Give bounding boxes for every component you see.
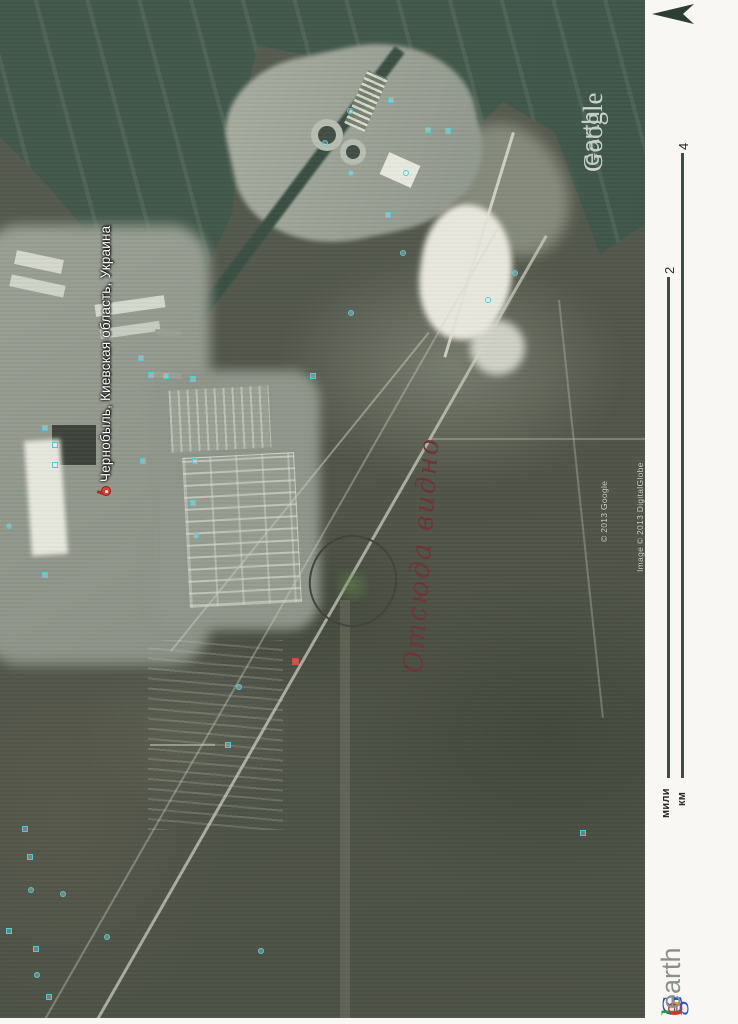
scan-texture: [0, 0, 645, 1018]
scale-bar-miles: [667, 277, 670, 778]
margin-panel: 4 2 мили км Googleearth: [645, 0, 738, 1024]
scanned-page: Отсюда видно Чернобыль, Киевская область…: [0, 0, 738, 1024]
scale-bar-km: [681, 153, 684, 778]
scale-miles-value: 2: [662, 267, 677, 274]
earth-logo-word: earth: [656, 947, 687, 1009]
page-margin-bottom: [0, 1018, 645, 1024]
satellite-map[interactable]: Отсюда видно Чернобыль, Киевская область…: [0, 0, 645, 1018]
scale-km-unit: км: [676, 792, 688, 806]
scale-km-value: 4: [676, 143, 691, 150]
north-arrow-icon: [651, 2, 695, 26]
scale-miles-unit: мили: [660, 788, 672, 818]
